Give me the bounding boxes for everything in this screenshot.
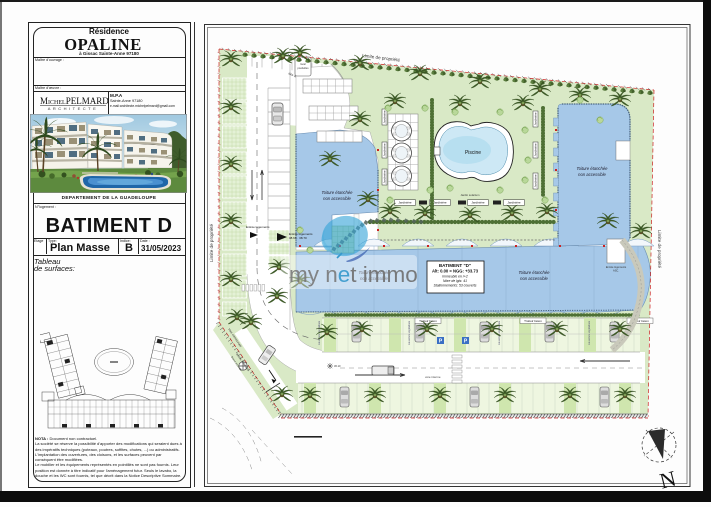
svg-text:Jardinière: Jardinière <box>534 174 538 188</box>
svg-text:Jardinière: Jardinière <box>398 201 412 205</box>
svg-text:Jardinière: Jardinière <box>383 110 387 124</box>
svg-text:non accessible: non accessible <box>323 196 351 201</box>
svg-text:Limite de propriété: Limite de propriété <box>209 224 214 262</box>
svg-text:Trottoir béton: Trottoir béton <box>524 319 542 323</box>
svg-text:Jardinière: Jardinière <box>507 201 521 205</box>
svg-text:Jardinière: Jardinière <box>383 143 387 157</box>
svg-text:couverture végétalisée: couverture végétalisée <box>498 320 501 345</box>
svg-text:couverture végétalisée: couverture végétalisée <box>588 320 591 345</box>
svg-text:Jardin solarium: Jardin solarium <box>461 193 481 197</box>
svg-text:non accessible: non accessible <box>578 172 606 177</box>
svg-text:Toiture étanchée: Toiture étanchée <box>576 166 608 171</box>
svg-text:ASC.: ASC. <box>613 269 619 273</box>
svg-text:Toiture étanchée: Toiture étanchée <box>518 270 550 275</box>
svg-text:non accessible: non accessible <box>520 276 548 281</box>
svg-text:Nbre de lgts: 41: Nbre de lgts: 41 <box>443 279 467 283</box>
svg-text:Entrée logements: Entrée logements <box>246 225 270 229</box>
svg-text:Jardinière: Jardinière <box>433 201 447 205</box>
svg-text:Stationnements: 53 couverts: Stationnements: 53 couverts <box>434 284 477 288</box>
svg-text:local: local <box>300 62 306 66</box>
svg-text:voie interne: voie interne <box>425 375 441 379</box>
svg-text:Jardinière: Jardinière <box>534 143 538 157</box>
svg-text:my net immo: my net immo <box>289 262 418 287</box>
svg-text:Entrée logements: Entrée logements <box>606 265 627 269</box>
svg-text:Immeuble en r+2: Immeuble en r+2 <box>442 275 468 279</box>
svg-text:Jardinière: Jardinière <box>471 201 485 205</box>
svg-text:N: N <box>657 465 679 493</box>
svg-text:couverture végétalisée: couverture végétalisée <box>408 320 411 345</box>
svg-text:Jardinière: Jardinière <box>534 112 538 126</box>
svg-text:Jardinière: Jardinière <box>383 170 387 184</box>
svg-text:Piscine: Piscine <box>465 150 481 156</box>
svg-text:Limite de propriété: Limite de propriété <box>362 53 401 63</box>
svg-text:38.66 · 38.70: 38.66 · 38.70 <box>289 236 307 240</box>
svg-text:BATIMENT "D": BATIMENT "D" <box>439 263 471 268</box>
svg-text:Toiture étanchée: Toiture étanchée <box>321 190 353 195</box>
svg-text:Limite de propriété: Limite de propriété <box>657 230 662 268</box>
svg-text:Alt: 0.00 = NGG: +33.73: Alt: 0.00 = NGG: +33.73 <box>432 269 479 274</box>
svg-text:36.10: 36.10 <box>334 364 341 368</box>
svg-text:poubelles: poubelles <box>297 66 309 70</box>
